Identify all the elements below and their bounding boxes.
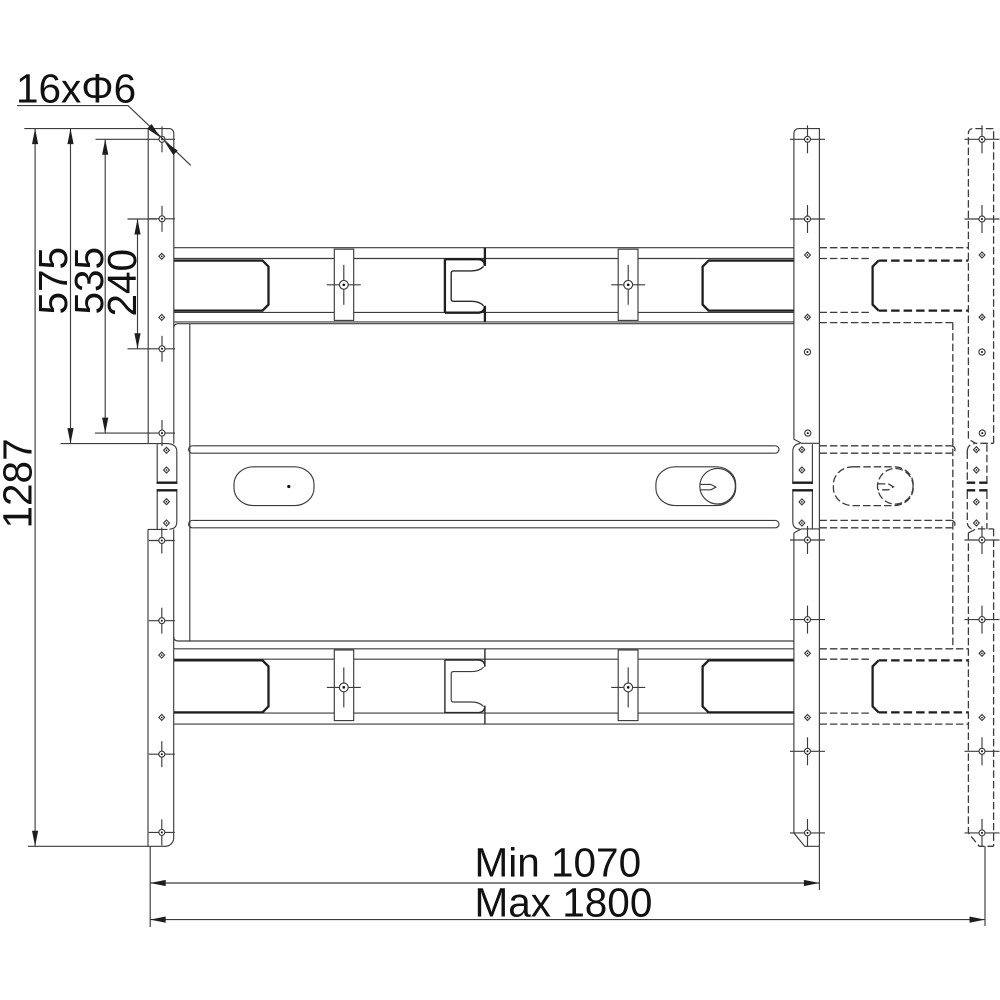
svg-text:Max 1800: Max 1800 bbox=[475, 879, 653, 925]
svg-text:16xΦ6: 16xΦ6 bbox=[16, 66, 136, 112]
svg-text:1287: 1287 bbox=[0, 438, 41, 528]
svg-text:240: 240 bbox=[99, 249, 145, 317]
